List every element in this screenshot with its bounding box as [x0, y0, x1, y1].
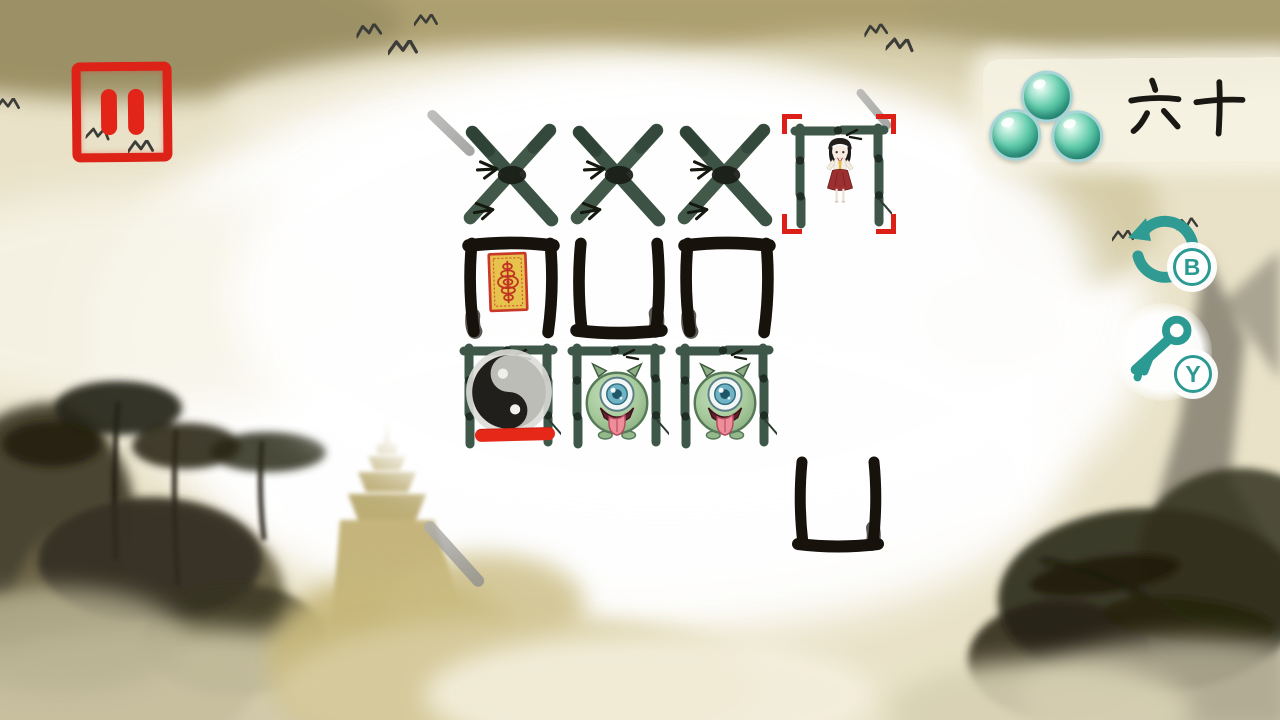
red-underline-marker: [475, 427, 555, 442]
move-counter-text: [1125, 73, 1251, 144]
bamboo-x-icon: [670, 112, 782, 234]
bird-icon: [0, 98, 20, 112]
board-cell-x-blocker[interactable]: [456, 112, 568, 234]
pause-button[interactable]: [71, 61, 172, 162]
gamepad-y-label: Y: [1185, 361, 1200, 388]
board-cell-monster[interactable]: [671, 338, 779, 454]
gamepad-b-badge: B: [1173, 248, 1211, 286]
talisman-card: [487, 251, 529, 312]
board-cell-x-blocker[interactable]: [670, 112, 782, 234]
move-counter-panel: 六十: [983, 57, 1280, 163]
ink-gate-open-bottom-icon: [674, 230, 780, 346]
pause-icon: [81, 71, 164, 154]
bird-icon: [414, 14, 438, 28]
cyclops-monster-icon: [686, 360, 764, 442]
selection-bracket-icon: [782, 214, 802, 234]
jade-orb-icon: [989, 109, 1041, 161]
gamepad-y-badge: Y: [1174, 355, 1212, 393]
yin-yang-icon: [463, 346, 555, 438]
selection-bracket-icon: [876, 114, 896, 134]
board-cell-empty-gate[interactable]: [786, 450, 890, 558]
board-cell-player[interactable]: [782, 114, 896, 234]
board-cell-talisman[interactable]: [458, 230, 564, 346]
player-girl[interactable]: [815, 124, 865, 222]
board-cell-x-blocker[interactable]: [563, 112, 675, 234]
cyclops-monster-icon: [578, 360, 656, 442]
gamepad-b-label: B: [1184, 254, 1201, 281]
selection-bracket-icon: [782, 114, 802, 134]
bird-icon: [388, 40, 418, 57]
jade-orb-icon: [1051, 110, 1103, 162]
selection-bracket-icon: [876, 214, 896, 234]
ink-gate-open-top-icon: [566, 230, 672, 346]
bird-icon: [863, 23, 888, 39]
bird-icon: [885, 36, 915, 55]
bamboo-x-icon: [456, 112, 568, 234]
board-cell-empty-gate[interactable]: [674, 230, 780, 346]
board-cell-empty-gate[interactable]: [566, 230, 672, 346]
ink-gate-open-top-icon: [786, 450, 890, 558]
bird-icon: [355, 23, 382, 41]
bamboo-x-icon: [563, 112, 675, 234]
board-cell-monster[interactable]: [563, 338, 671, 454]
board-cell-yinyang[interactable]: [455, 338, 563, 454]
game-screen: 六十 B Y: [0, 0, 1280, 720]
